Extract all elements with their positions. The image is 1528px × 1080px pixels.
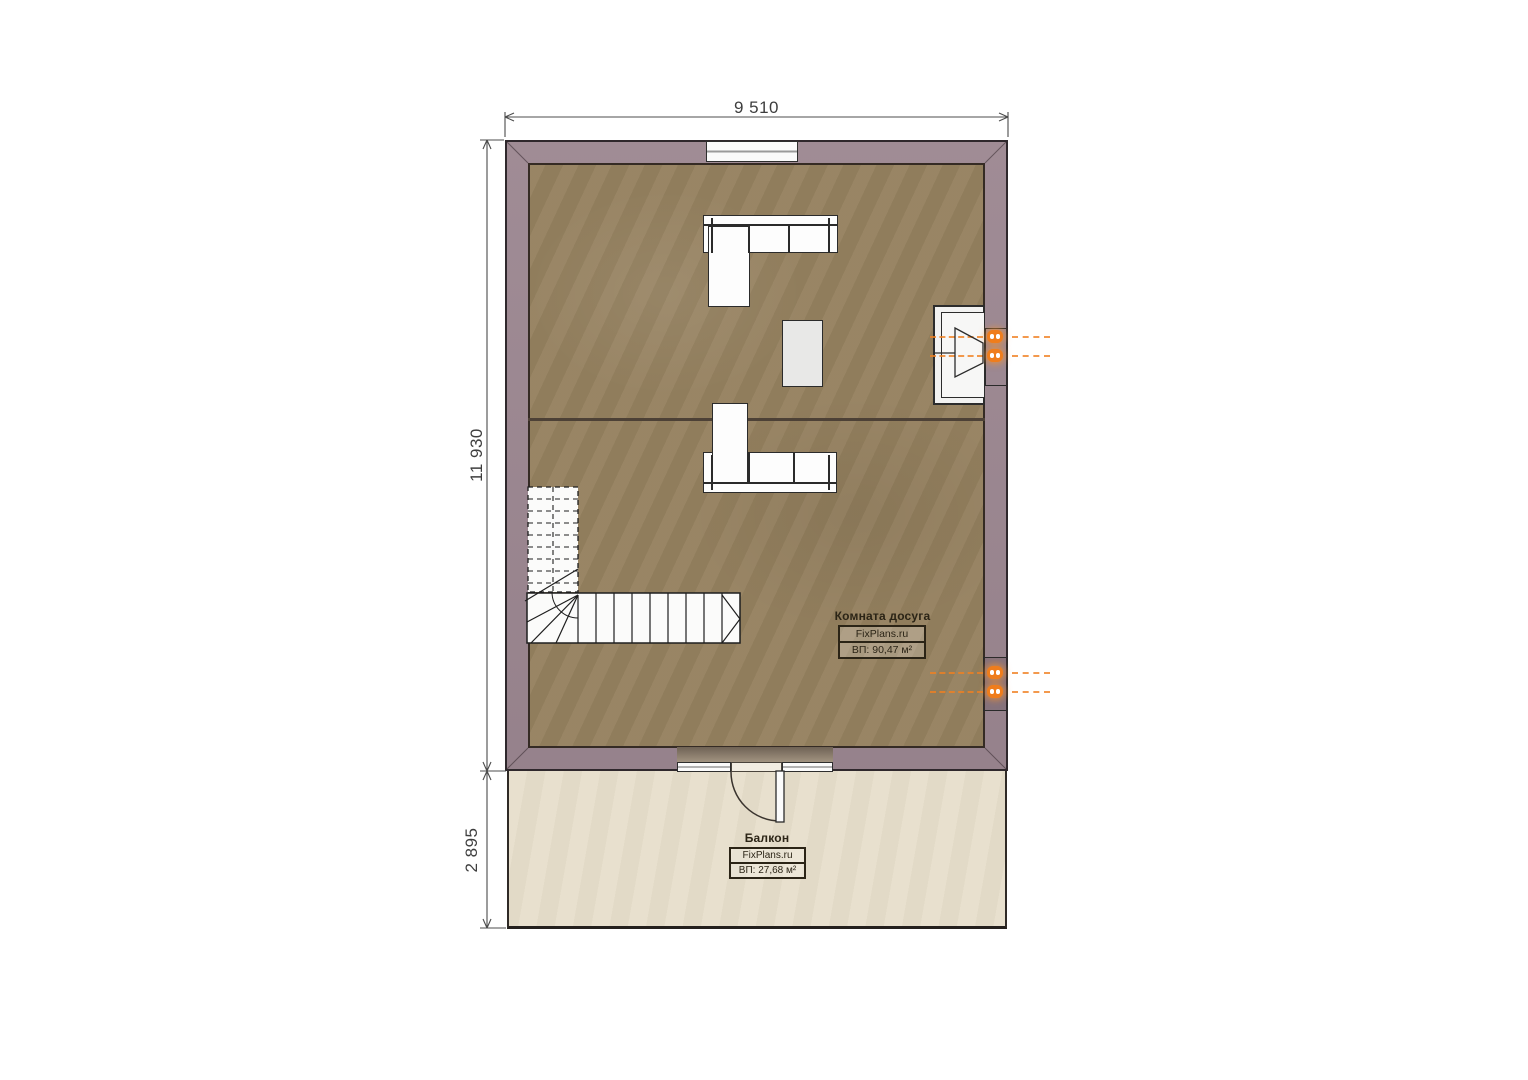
power-outlet-icon [987, 666, 1003, 679]
sofa-chaise [708, 226, 750, 307]
dimension-left-height: 11 930 [467, 395, 487, 515]
sofa-seam [788, 224, 790, 253]
room-tag-balcony: FixPlans.ru ВП: 27,68 м² [729, 847, 806, 879]
window-icon [706, 141, 798, 162]
outlet-leader-line [1012, 672, 1050, 674]
sofa-seam [748, 224, 750, 253]
dimension-top-width: 9 510 [505, 98, 1008, 118]
sofa-chaise [712, 403, 748, 483]
outlet-leader-line [1012, 691, 1050, 693]
power-outlet-icon [987, 685, 1003, 698]
room-tag-leisure: FixPlans.ru ВП: 90,47 м² [838, 625, 926, 659]
partition-line [528, 418, 985, 421]
room-name-balcony: Балкон [717, 831, 817, 845]
outlet-leader-line [930, 336, 983, 338]
brand-watermark: FixPlans.ru [731, 849, 804, 862]
window-icon [782, 762, 833, 772]
dimension-balcony-depth: 2 895 [462, 790, 482, 910]
sofa-armrest-line [711, 455, 713, 490]
sofa-armrest-line [828, 455, 830, 490]
power-outlet-icon [987, 330, 1003, 343]
sofa-armrest-line [711, 218, 713, 253]
outlet-leader-line [930, 672, 983, 674]
room-area-value: ВП: 27,68 м² [731, 862, 804, 877]
sofa-seam [793, 452, 795, 482]
outlet-leader-line [1012, 355, 1050, 357]
room-name-leisure: Комната досуга [820, 609, 945, 623]
sofa-backrest-line [703, 482, 837, 484]
floor-plan-canvas: 9 510 11 930 2 895 Комната досуга FixPla… [0, 0, 1528, 1080]
sofa-armrest-line [828, 218, 830, 253]
outlet-leader-line [930, 355, 983, 357]
outlet-leader-line [1012, 336, 1050, 338]
sofa-backrest-line [703, 224, 838, 226]
window-icon [677, 762, 731, 772]
door-threshold [731, 762, 782, 772]
brand-watermark: FixPlans.ru [840, 627, 924, 641]
coffee-table-icon [782, 320, 823, 387]
room-area-value: ВП: 90,47 м² [840, 641, 924, 657]
outlet-leader-line [930, 691, 983, 693]
sofa-seam [748, 452, 750, 482]
power-outlet-icon [987, 349, 1003, 362]
